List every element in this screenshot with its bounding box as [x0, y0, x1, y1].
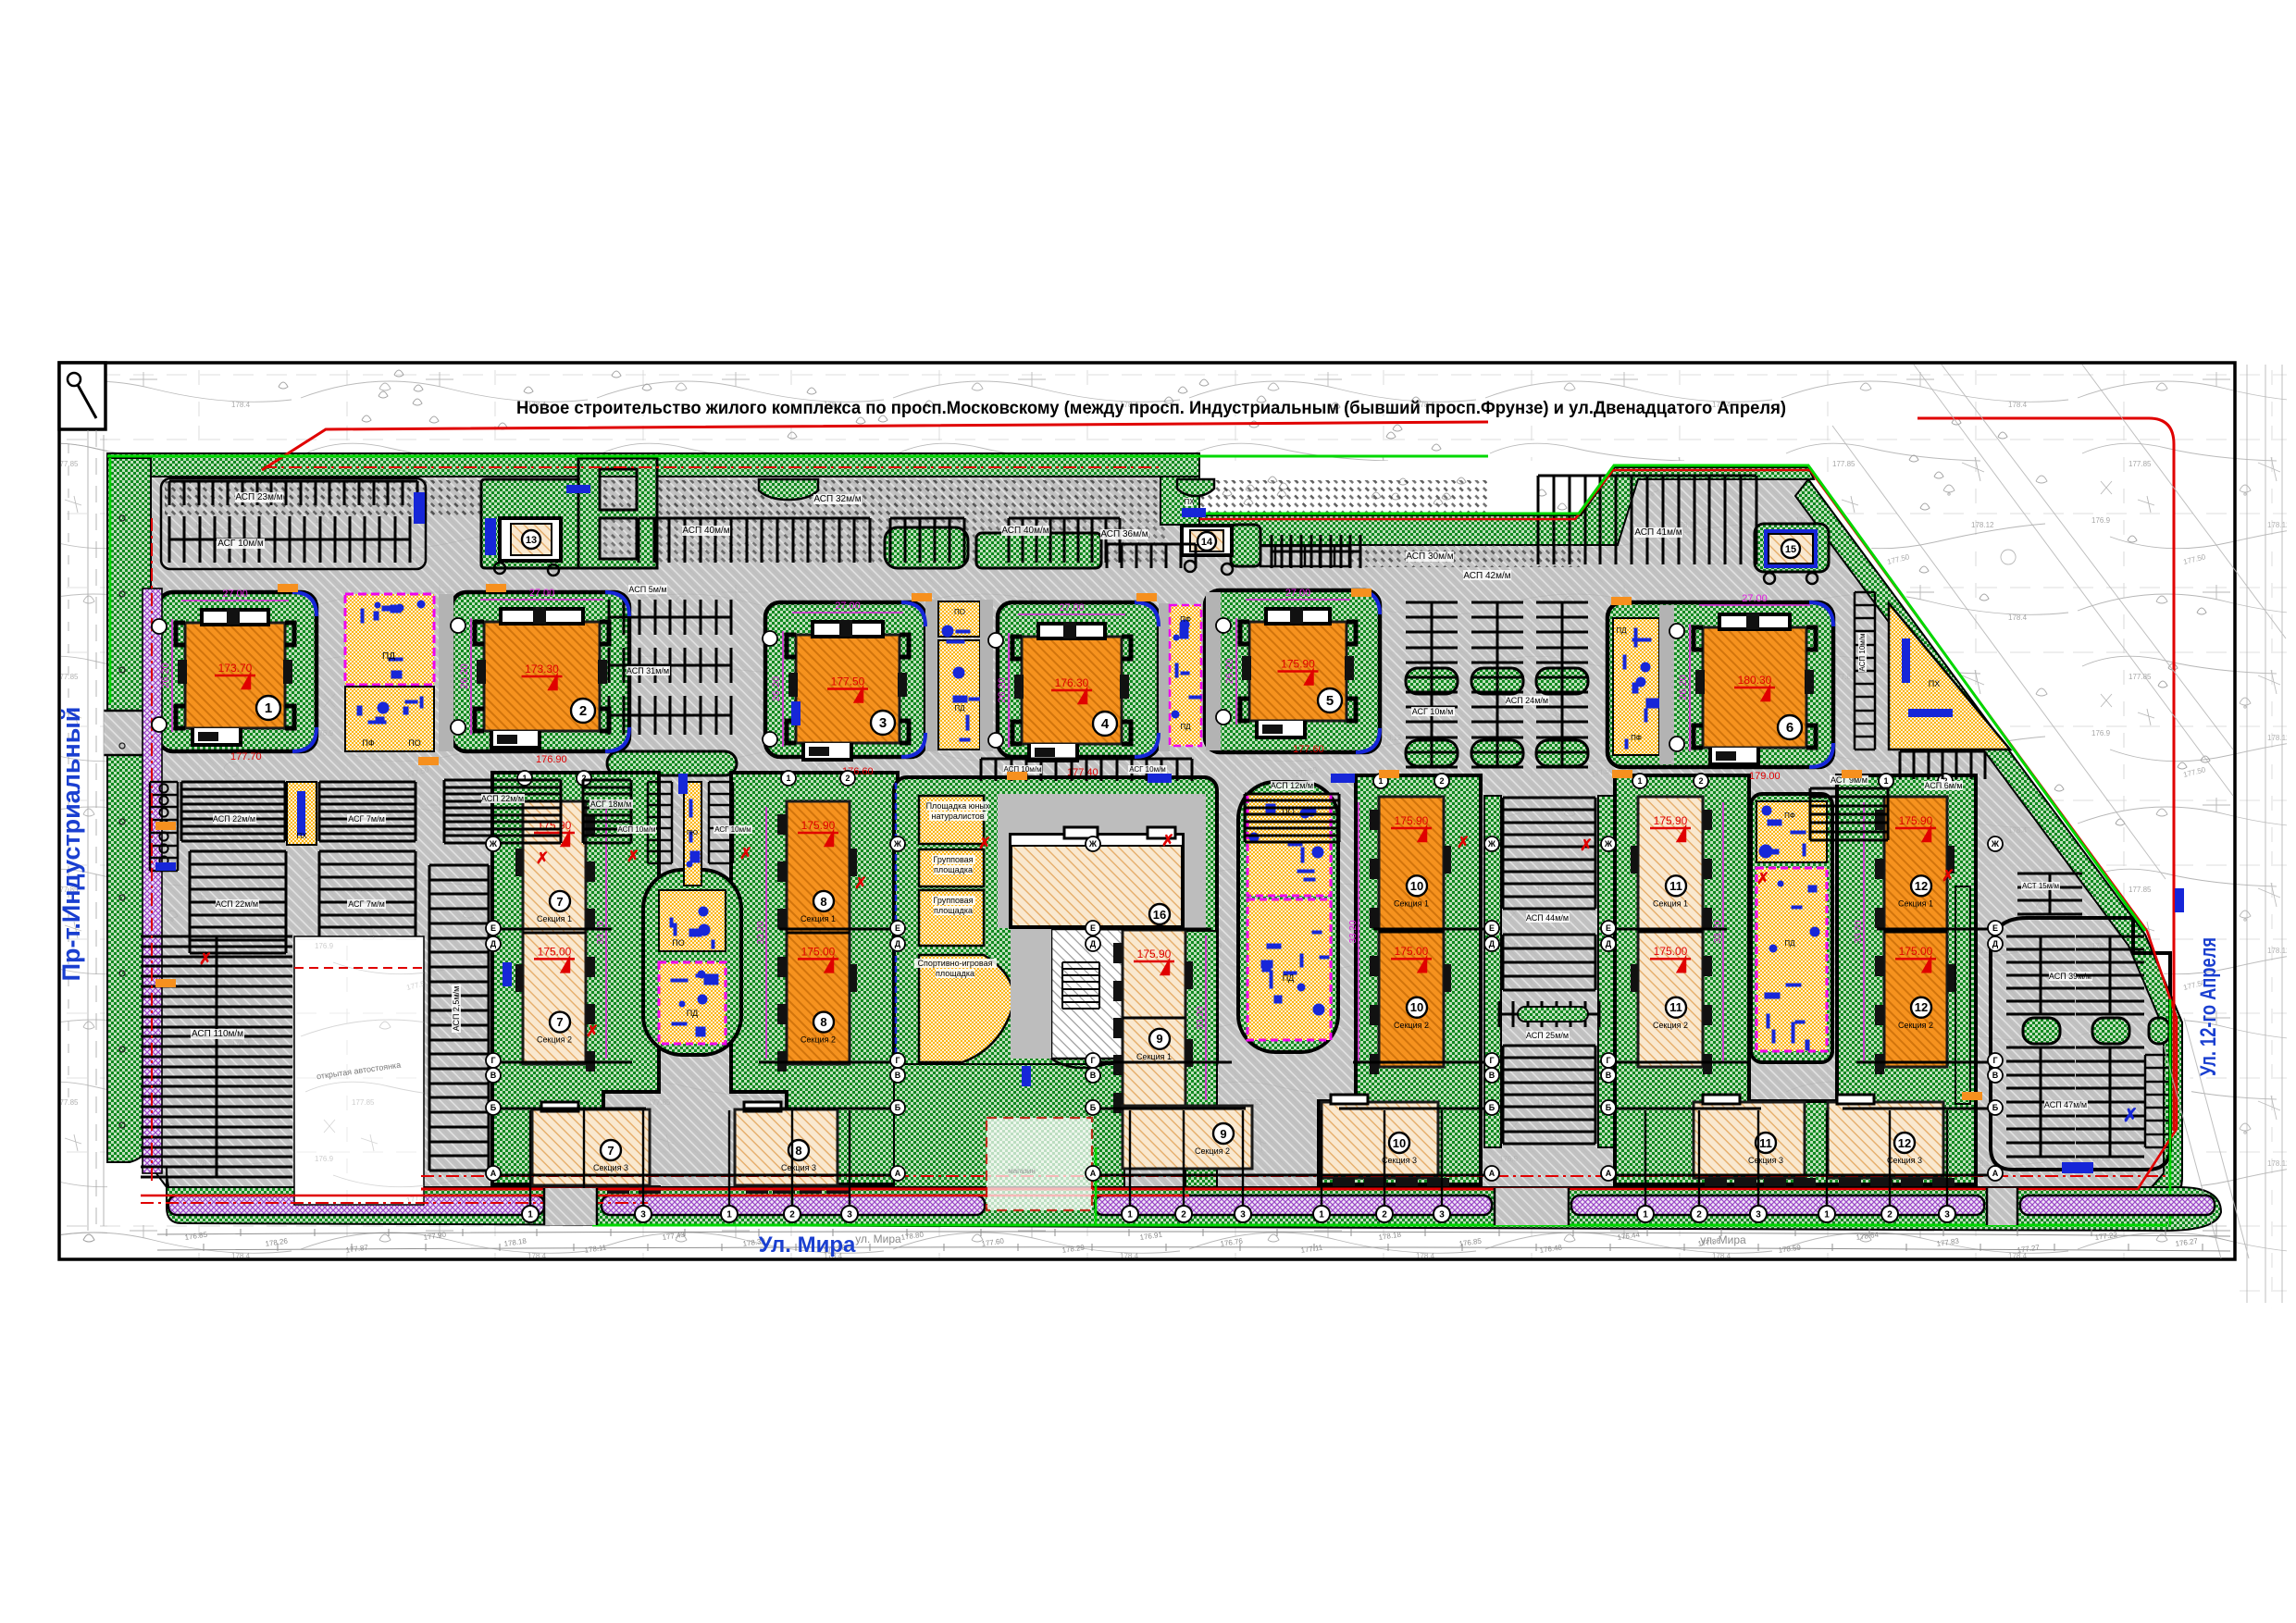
svg-text:Б: Б — [1992, 1103, 1999, 1112]
svg-text:ПХ: ПХ — [296, 832, 307, 840]
svg-text:179.00: 179.00 — [1749, 771, 1781, 782]
svg-text:3: 3 — [847, 1210, 852, 1220]
svg-text:33.20: 33.20 — [1348, 920, 1359, 943]
svg-text:ПО: ПО — [672, 938, 684, 948]
svg-text:Групповая: Групповая — [933, 855, 973, 864]
svg-text:ПД: ПД — [954, 704, 965, 712]
svg-text:Площадка юных: Площадка юных — [926, 801, 990, 811]
svg-text:2: 2 — [1439, 776, 1444, 786]
svg-text:Новое строительство жилого ком: Новое строительство жилого комплекса по … — [516, 399, 1786, 418]
svg-text:Секция 1: Секция 1 — [800, 914, 836, 923]
svg-text:АСГ 7м/м: АСГ 7м/м — [348, 899, 385, 909]
svg-text:В: В — [490, 1071, 497, 1080]
svg-text:АСП 40м/м: АСП 40м/м — [1001, 526, 1049, 536]
svg-text:Д: Д — [1992, 939, 1999, 948]
svg-text:Ж: Ж — [1991, 839, 2000, 849]
svg-text:1: 1 — [527, 1210, 533, 1220]
svg-text:ПХ: ПХ — [1929, 679, 1940, 688]
svg-text:1: 1 — [1643, 1210, 1648, 1220]
svg-text:1: 1 — [1883, 776, 1888, 786]
svg-text:Е: Е — [1606, 923, 1611, 933]
svg-text:АСП 32м/м: АСП 32м/м — [813, 494, 861, 504]
svg-text:Секция 3: Секция 3 — [1382, 1156, 1417, 1165]
svg-text:27.00: 27.00 — [835, 601, 861, 612]
svg-text:7: 7 — [607, 1144, 614, 1158]
svg-text:1: 1 — [786, 774, 790, 783]
svg-text:АСГ 10м/м: АСГ 10м/м — [714, 825, 751, 834]
svg-text:175.00: 175.00 — [1395, 945, 1429, 958]
svg-text:26.20: 26.20 — [1224, 659, 1235, 685]
svg-text:В: В — [895, 1071, 901, 1080]
svg-text:Б: Б — [1090, 1103, 1097, 1112]
svg-text:Б: Б — [1606, 1103, 1612, 1112]
svg-text:АСП 30м/м: АСП 30м/м — [1406, 551, 1453, 562]
svg-text:175.00: 175.00 — [538, 945, 572, 958]
svg-text:ПФ: ПФ — [1180, 615, 1191, 624]
svg-text:Д: Д — [490, 939, 497, 948]
svg-text:В: В — [1992, 1071, 1999, 1080]
svg-text:176.90: 176.90 — [536, 754, 567, 765]
svg-text:Ж: Ж — [489, 839, 498, 849]
svg-text:ПО: ПО — [408, 738, 420, 748]
svg-text:Б: Б — [895, 1103, 901, 1112]
svg-text:✗: ✗ — [627, 848, 639, 865]
svg-text:Секция 1: Секция 1 — [1898, 898, 1933, 908]
svg-text:3: 3 — [640, 1210, 646, 1220]
svg-text:✗: ✗ — [2123, 1106, 2139, 1126]
svg-text:26.20: 26.20 — [771, 676, 782, 702]
svg-text:33.20: 33.20 — [596, 921, 606, 944]
svg-text:1: 1 — [265, 700, 272, 716]
svg-text:ПД: ПД — [1784, 939, 1795, 948]
svg-text:Спортивно-игровая: Спортивно-игровая — [918, 959, 993, 968]
svg-text:7: 7 — [556, 895, 563, 909]
svg-text:Г: Г — [895, 1056, 900, 1065]
svg-text:5: 5 — [1326, 693, 1334, 709]
svg-text:площадка: площадка — [934, 906, 973, 915]
svg-text:27.00: 27.00 — [1059, 602, 1085, 613]
svg-text:4: 4 — [1101, 716, 1110, 732]
svg-text:ул. Мира: ул. Мира — [855, 1233, 901, 1245]
svg-text:Г: Г — [1992, 1056, 1997, 1065]
svg-text:33.20: 33.20 — [1196, 1006, 1206, 1029]
svg-text:Секция 2: Секция 2 — [1195, 1146, 1230, 1156]
svg-text:175.90: 175.90 — [801, 819, 836, 832]
svg-text:12: 12 — [1915, 879, 1928, 893]
svg-text:1: 1 — [1127, 1210, 1133, 1220]
svg-text:11: 11 — [1759, 1136, 1772, 1150]
svg-text:1: 1 — [1319, 1210, 1324, 1220]
svg-text:✗: ✗ — [1942, 867, 1955, 885]
svg-text:ПФ: ПФ — [1631, 734, 1642, 742]
svg-text:27.00: 27.00 — [529, 588, 555, 599]
svg-text:АСП 40м/м: АСП 40м/м — [682, 526, 729, 536]
svg-text:✗: ✗ — [199, 950, 212, 968]
svg-text:173.70: 173.70 — [218, 662, 253, 675]
svg-text:33.20: 33.20 — [1854, 920, 1864, 943]
svg-text:Г: Г — [1090, 1056, 1095, 1065]
svg-text:Секция 2: Секция 2 — [1394, 1021, 1429, 1030]
svg-text:12: 12 — [1898, 1136, 1911, 1150]
svg-text:АСП 110м/м: АСП 110м/м — [192, 1029, 243, 1039]
svg-text:10: 10 — [1393, 1136, 1406, 1150]
svg-text:АСГ 18м/м: АСГ 18м/м — [590, 799, 632, 809]
svg-text:8: 8 — [795, 1144, 801, 1158]
svg-text:✗: ✗ — [978, 835, 991, 852]
svg-text:площадка: площадка — [936, 969, 974, 978]
svg-text:2: 2 — [1696, 1210, 1702, 1220]
svg-text:ПД: ПД — [687, 1009, 699, 1018]
svg-text:✗: ✗ — [586, 1022, 599, 1040]
svg-text:Ж: Ж — [893, 839, 902, 849]
svg-text:ПФ: ПФ — [1784, 811, 1795, 820]
svg-text:АСП 31м/м: АСП 31м/м — [627, 666, 669, 675]
svg-text:В: В — [1090, 1071, 1097, 1080]
svg-text:Секция 3: Секция 3 — [593, 1163, 628, 1172]
svg-text:10: 10 — [1410, 1000, 1423, 1014]
svg-text:Д: Д — [895, 939, 901, 948]
svg-text:175.00: 175.00 — [1899, 945, 1933, 958]
svg-text:АСП 22м/м: АСП 22м/м — [213, 814, 255, 824]
svg-text:В: В — [1489, 1071, 1496, 1080]
svg-text:АСП 12м/м: АСП 12м/м — [1271, 781, 1313, 790]
svg-text:магазин: магазин — [1008, 1167, 1036, 1175]
svg-text:ПД: ПД — [1616, 626, 1627, 635]
svg-text:26.20: 26.20 — [160, 663, 171, 688]
svg-text:177.50: 177.50 — [831, 675, 865, 688]
svg-text:✗: ✗ — [739, 845, 752, 862]
svg-text:ПО: ПО — [954, 608, 965, 616]
svg-text:А: А — [1489, 1169, 1496, 1178]
svg-text:А: А — [895, 1169, 901, 1178]
svg-text:Е: Е — [490, 923, 496, 933]
svg-text:Д: Д — [1090, 939, 1097, 948]
svg-text:175.90: 175.90 — [1654, 814, 1688, 827]
svg-text:33.20: 33.20 — [1713, 920, 1723, 943]
svg-text:АСП 25м/м: АСП 25м/м — [1526, 1031, 1569, 1040]
svg-text:1: 1 — [1824, 1210, 1830, 1220]
svg-text:АСП 6м/м: АСП 6м/м — [1924, 781, 1962, 790]
svg-text:2: 2 — [789, 1210, 795, 1220]
svg-text:13: 13 — [526, 535, 537, 546]
svg-text:АСГ 10м/м: АСГ 10м/м — [217, 539, 264, 549]
svg-text:16: 16 — [1153, 908, 1166, 922]
svg-text:Секция 1: Секция 1 — [1653, 898, 1688, 908]
svg-text:Б: Б — [1489, 1103, 1496, 1112]
svg-text:АСТ 15м/м: АСТ 15м/м — [2022, 882, 2059, 890]
svg-text:Е: Е — [895, 923, 900, 933]
svg-text:АСП 41м/м: АСП 41м/м — [1634, 527, 1682, 538]
svg-text:3: 3 — [1240, 1210, 1246, 1220]
svg-text:8: 8 — [820, 1015, 826, 1029]
svg-text:12: 12 — [1915, 1000, 1928, 1014]
svg-text:АСП 2,5м/м: АСП 2,5м/м — [452, 986, 461, 1032]
svg-text:Секция 3: Секция 3 — [781, 1163, 816, 1172]
svg-text:175.00: 175.00 — [1654, 945, 1688, 958]
svg-text:Д: Д — [1489, 939, 1496, 948]
svg-text:3: 3 — [1944, 1210, 1950, 1220]
svg-text:176.30: 176.30 — [1055, 676, 1089, 689]
svg-text:Д: Д — [1606, 939, 1612, 948]
svg-text:Секция 3: Секция 3 — [1887, 1156, 1922, 1165]
svg-text:27.00: 27.00 — [222, 588, 248, 600]
svg-text:3: 3 — [879, 715, 887, 731]
svg-text:АСГ 10м/м: АСГ 10м/м — [1412, 707, 1454, 716]
svg-text:Секция 2: Секция 2 — [800, 1035, 836, 1045]
svg-text:ПХ: ПХ — [1184, 498, 1195, 506]
svg-text:33.20: 33.20 — [756, 921, 766, 944]
svg-text:8: 8 — [820, 895, 826, 909]
svg-text:АСП 36м/м: АСП 36м/м — [1100, 529, 1148, 539]
svg-text:Б: Б — [490, 1103, 497, 1112]
svg-text:Г: Г — [490, 1056, 495, 1065]
svg-text:Секция 3: Секция 3 — [1748, 1156, 1783, 1165]
svg-text:2: 2 — [845, 774, 850, 783]
svg-text:177.60: 177.60 — [1293, 744, 1324, 755]
svg-text:ПФ: ПФ — [362, 738, 374, 748]
svg-text:27.00: 27.00 — [1285, 588, 1311, 599]
svg-text:15: 15 — [1785, 544, 1796, 555]
svg-text:Ж: Ж — [1487, 839, 1496, 849]
svg-text:1: 1 — [726, 1210, 732, 1220]
svg-text:27.00: 27.00 — [1742, 593, 1768, 604]
svg-text:3: 3 — [1439, 1210, 1445, 1220]
svg-text:26.20: 26.20 — [997, 677, 1008, 703]
svg-text:Г: Г — [1606, 1056, 1610, 1065]
svg-text:Групповая: Групповая — [933, 896, 973, 905]
svg-text:175.90: 175.90 — [1281, 658, 1315, 671]
svg-text:Ж: Ж — [1604, 839, 1613, 849]
svg-text:АСП 23м/м: АСП 23м/м — [235, 492, 282, 502]
svg-text:175.90: 175.90 — [1137, 948, 1172, 960]
svg-text:2: 2 — [1698, 776, 1703, 786]
svg-text:177.70: 177.70 — [230, 751, 262, 762]
svg-text:Г: Г — [1489, 1056, 1494, 1065]
svg-text:АСП 42м/м: АСП 42м/м — [1463, 571, 1510, 581]
svg-text:ПЮ: ПЮ — [687, 830, 698, 836]
svg-text:Ж: Ж — [1088, 839, 1098, 849]
svg-text:Е: Е — [1992, 923, 1998, 933]
svg-text:Секция 1: Секция 1 — [1394, 898, 1429, 908]
svg-text:Секция 1: Секция 1 — [537, 914, 572, 923]
svg-text:173.30: 173.30 — [525, 663, 559, 675]
svg-text:✗: ✗ — [1457, 834, 1470, 851]
svg-text:АСП 22м/м: АСП 22м/м — [216, 899, 258, 909]
svg-text:11: 11 — [1669, 879, 1682, 893]
svg-text:14: 14 — [1201, 537, 1213, 548]
svg-text:АСГ 7м/м: АСГ 7м/м — [348, 814, 385, 824]
svg-text:11: 11 — [1669, 1000, 1682, 1014]
svg-text:✗: ✗ — [1756, 870, 1769, 887]
svg-text:Е: Е — [1489, 923, 1495, 933]
svg-text:9: 9 — [1156, 1032, 1162, 1046]
svg-text:3: 3 — [1756, 1210, 1761, 1220]
svg-text:✗: ✗ — [1161, 832, 1174, 849]
svg-text:2: 2 — [1382, 1210, 1387, 1220]
svg-text:175.90: 175.90 — [1395, 814, 1429, 827]
svg-text:натуралистов: натуралистов — [932, 811, 985, 821]
svg-text:Секция 1: Секция 1 — [1136, 1052, 1172, 1061]
svg-text:175.00: 175.00 — [801, 945, 836, 958]
svg-text:Е: Е — [1090, 923, 1096, 933]
svg-text:АСП 5м/м: АСП 5м/м — [628, 585, 666, 594]
svg-text:А: А — [1090, 1169, 1097, 1178]
svg-text:Секция 2: Секция 2 — [1898, 1021, 1933, 1030]
svg-text:175.90: 175.90 — [1899, 814, 1933, 827]
svg-text:Пр-т.Индустриальный: Пр-т.Индустриальный — [57, 707, 85, 982]
svg-text:АСП 47м/м: АСП 47м/м — [2044, 1100, 2087, 1109]
svg-text:ул. Мира: ул. Мира — [1700, 1233, 1746, 1246]
svg-text:1: 1 — [1637, 776, 1642, 786]
svg-text:АСП 44м/м: АСП 44м/м — [1526, 913, 1569, 923]
svg-text:Ул. 12-го Апреля: Ул. 12-го Апреля — [2196, 937, 2221, 1076]
svg-text:26.20: 26.20 — [1678, 675, 1689, 700]
svg-text:АСП 10м/м: АСП 10м/м — [617, 825, 655, 834]
svg-text:10: 10 — [1410, 879, 1423, 893]
svg-text:Секция 2: Секция 2 — [1653, 1021, 1688, 1030]
svg-text:А: А — [1992, 1169, 1999, 1178]
svg-text:АСП 22м/м: АСП 22м/м — [481, 794, 524, 803]
svg-text:А: А — [1606, 1169, 1612, 1178]
svg-text:✗: ✗ — [1580, 836, 1593, 854]
svg-text:2: 2 — [1887, 1210, 1893, 1220]
svg-text:2: 2 — [579, 703, 587, 719]
svg-text:7: 7 — [556, 1015, 563, 1029]
svg-text:площадка: площадка — [934, 865, 973, 874]
svg-text:АСГ 10м/м: АСГ 10м/м — [1129, 765, 1166, 774]
svg-text:А: А — [490, 1169, 497, 1178]
svg-text:ПД: ПД — [1283, 973, 1295, 983]
svg-text:180.30: 180.30 — [1738, 674, 1772, 687]
svg-text:АСП 24м/м: АСП 24м/м — [1506, 696, 1548, 705]
svg-text:В: В — [1606, 1071, 1612, 1080]
svg-text:26.20: 26.20 — [459, 663, 470, 689]
svg-text:6: 6 — [1786, 720, 1793, 736]
svg-text:АСП 10м/м: АСП 10м/м — [1858, 633, 1867, 671]
svg-text:Ул. Мира: Ул. Мира — [759, 1233, 856, 1258]
svg-text:✗: ✗ — [854, 874, 867, 892]
svg-text:ПД: ПД — [382, 651, 395, 662]
svg-text:✗: ✗ — [536, 849, 549, 867]
svg-text:ПД: ПД — [1180, 723, 1191, 731]
svg-text:2: 2 — [1181, 1210, 1186, 1220]
svg-text:9: 9 — [1220, 1127, 1226, 1141]
svg-text:Секция 2: Секция 2 — [537, 1035, 572, 1045]
